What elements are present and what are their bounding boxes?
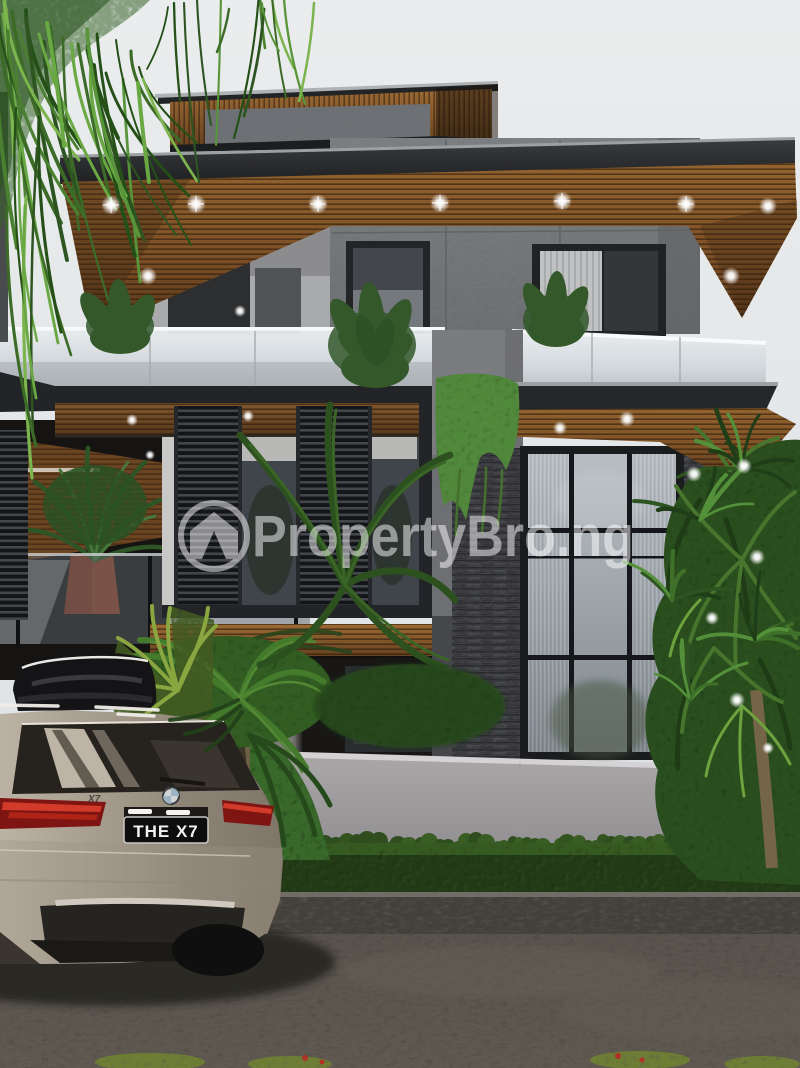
svg-text:PropertyBro.ng: PropertyBro.ng — [252, 504, 634, 569]
svg-text:THE X7: THE X7 — [133, 822, 199, 841]
svg-text:X7: X7 — [87, 794, 101, 805]
